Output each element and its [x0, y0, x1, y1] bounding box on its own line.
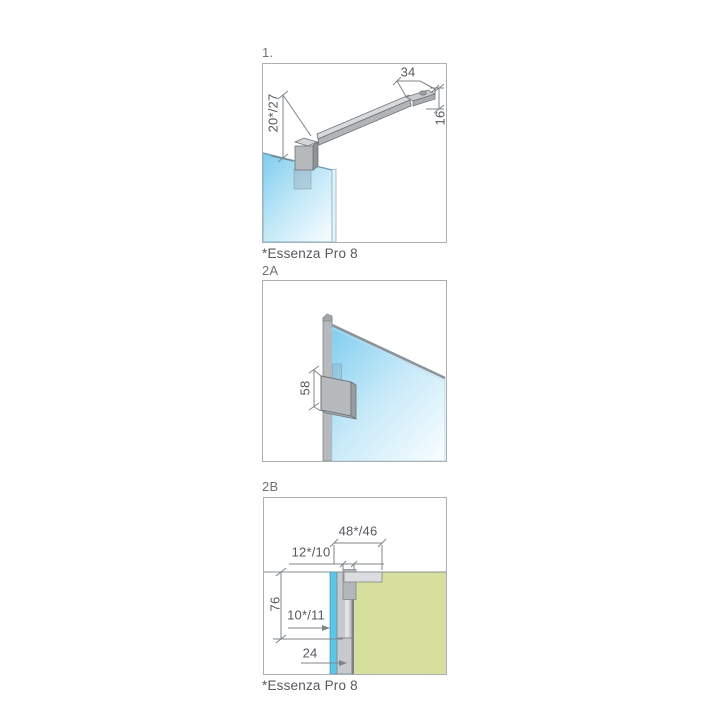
screw-cap	[420, 91, 427, 95]
dim-bar-height-label: 16	[433, 111, 448, 126]
dim-glass-offset-label: 10*/11	[287, 608, 325, 623]
dim-profile-width-label: 24	[303, 646, 318, 661]
dim-adjustment-label: 12*/10	[292, 545, 331, 560]
figure2a-panel: 58	[262, 280, 447, 462]
figure2b-label: 2B	[262, 479, 279, 494]
figure2b-panel: 48*/46 12*/10 76 10*/11 24	[263, 497, 447, 675]
bracket-plate	[321, 376, 356, 419]
clamp-through-glass	[294, 169, 311, 189]
figure1-label: 1.	[262, 45, 273, 60]
figure1-footnote: *Essenza Pro 8	[262, 246, 358, 261]
wall-section	[353, 572, 446, 674]
dim-profile-length-label: 76	[268, 597, 283, 612]
figure1-drawing	[263, 64, 446, 242]
figure2b-footnote: *Essenza Pro 8	[262, 678, 358, 693]
dim-wall-offset-label: 48*/46	[339, 524, 378, 539]
dim-glass-to-bar-label: 20*/27	[266, 94, 281, 133]
dim-bracket-width-label: 34	[401, 65, 416, 80]
figure1-panel: 20*/27 34 16	[262, 63, 447, 243]
dim-bracket-height-label: 58	[298, 381, 313, 396]
figure2a-drawing	[263, 281, 446, 461]
support-bar	[317, 95, 411, 145]
glass-edge	[330, 572, 337, 674]
drawing-canvas: 1.	[0, 0, 720, 720]
figure2a-label: 2A	[262, 263, 279, 278]
glass-clamp	[295, 138, 318, 170]
bracket-flange	[344, 572, 382, 582]
